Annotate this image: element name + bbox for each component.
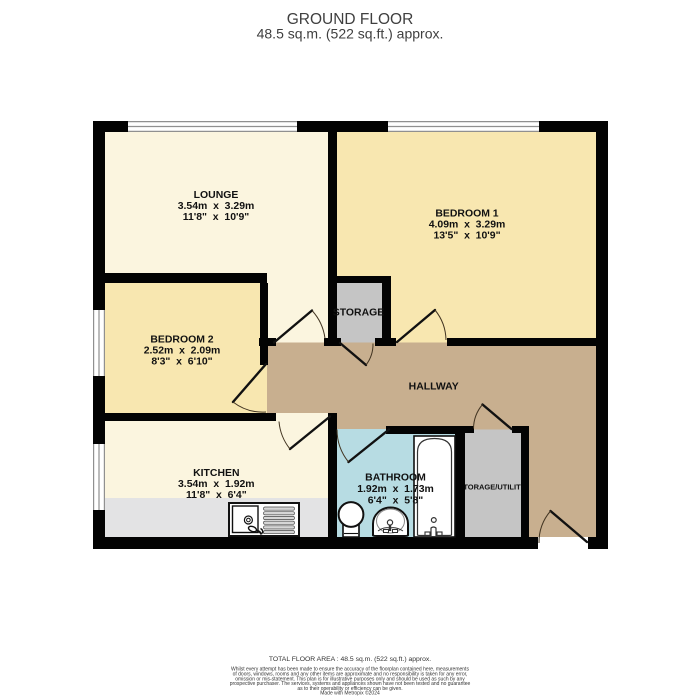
svg-text:2.52m x 2.09m: 2.52m x 2.09m [144,346,221,357]
svg-text:1.92m x 1.73m: 1.92m x 1.73m [357,484,434,495]
svg-text:11'8" x 6'4": 11'8" x 6'4" [186,490,247,501]
svg-text:STORAGE: STORAGE [333,308,384,319]
svg-text:Made with Metropix ©2024: Made with Metropix ©2024 [320,690,380,697]
svg-text:HALLWAY: HALLWAY [409,382,459,393]
svg-text:3.54m x 1.92m: 3.54m x 1.92m [178,479,255,490]
svg-text:6'4" x 5'8": 6'4" x 5'8" [368,496,424,507]
svg-text:LOUNGE: LOUNGE [194,190,239,201]
svg-text:BEDROOM 2: BEDROOM 2 [150,335,213,346]
svg-text:KITCHEN: KITCHEN [193,468,239,479]
svg-text:48.5 sq.m. (522 sq.ft.) approx: 48.5 sq.m. (522 sq.ft.) approx. [257,26,444,42]
svg-text:STORAGE/UTILITY: STORAGE/UTILITY [458,483,525,492]
svg-text:BATHROOM: BATHROOM [365,473,426,484]
svg-text:BEDROOM 1: BEDROOM 1 [435,209,498,220]
svg-text:11'8" x 10'9": 11'8" x 10'9" [183,212,250,223]
svg-text:13'5" x 10'9": 13'5" x 10'9" [433,231,500,242]
svg-text:TOTAL FLOOR AREA : 48.5 sq.m.: TOTAL FLOOR AREA : 48.5 sq.m. (522 sq.ft… [269,656,431,663]
svg-text:8'3" x 6'10": 8'3" x 6'10" [151,357,212,368]
svg-text:4.09m x 3.29m: 4.09m x 3.29m [429,220,506,231]
svg-text:3.54m x 3.29m: 3.54m x 3.29m [178,201,255,212]
